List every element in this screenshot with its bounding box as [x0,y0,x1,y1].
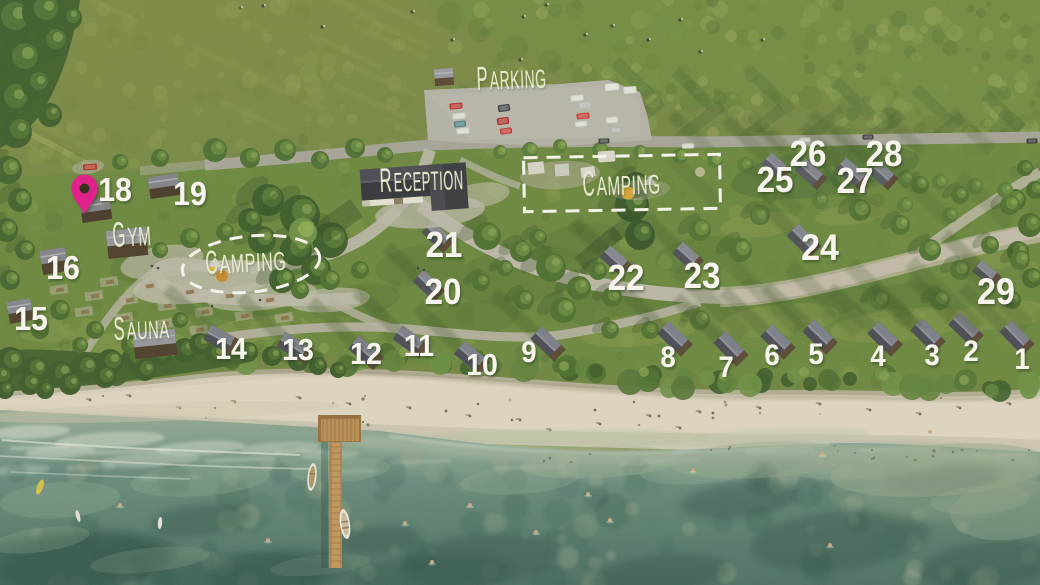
svg-text:9: 9 [521,336,536,369]
svg-text:13: 13 [282,333,314,367]
svg-text:P: P [476,60,488,97]
svg-text:AUNA: AUNA [126,316,170,345]
svg-text:2: 2 [963,335,978,368]
svg-text:12: 12 [350,337,382,371]
svg-text:22: 22 [608,259,645,299]
svg-text:15: 15 [14,300,48,337]
svg-text:25: 25 [757,161,794,201]
svg-text:YM: YM [127,221,153,252]
svg-text:28: 28 [866,135,903,175]
svg-text:AMPING: AMPING [219,246,287,279]
svg-text:C: C [582,165,595,204]
svg-text:19: 19 [173,175,207,212]
svg-text:1: 1 [1014,343,1029,376]
svg-text:29: 29 [977,271,1015,313]
svg-text:G: G [111,215,126,255]
svg-text:8: 8 [660,341,675,374]
svg-text:24: 24 [801,227,839,269]
svg-text:18: 18 [98,171,132,208]
svg-text:R: R [379,162,392,200]
svg-text:ARKING: ARKING [489,64,547,96]
svg-text:ECEPTION: ECEPTION [393,165,464,197]
svg-text:11: 11 [404,329,434,363]
svg-text:21: 21 [426,226,463,266]
svg-text:6: 6 [764,339,779,372]
svg-text:5: 5 [808,338,823,371]
svg-text:14: 14 [215,332,247,366]
svg-text:16: 16 [46,249,80,286]
svg-text:10: 10 [466,348,498,382]
svg-text:AMPING: AMPING [596,169,661,201]
svg-text:20: 20 [425,273,462,313]
svg-text:26: 26 [790,135,827,175]
svg-text:C: C [204,243,218,281]
svg-text:4: 4 [870,340,885,373]
svg-text:7: 7 [718,351,733,384]
svg-text:23: 23 [684,257,721,297]
svg-text:S: S [113,311,125,347]
svg-text:3: 3 [924,339,939,372]
